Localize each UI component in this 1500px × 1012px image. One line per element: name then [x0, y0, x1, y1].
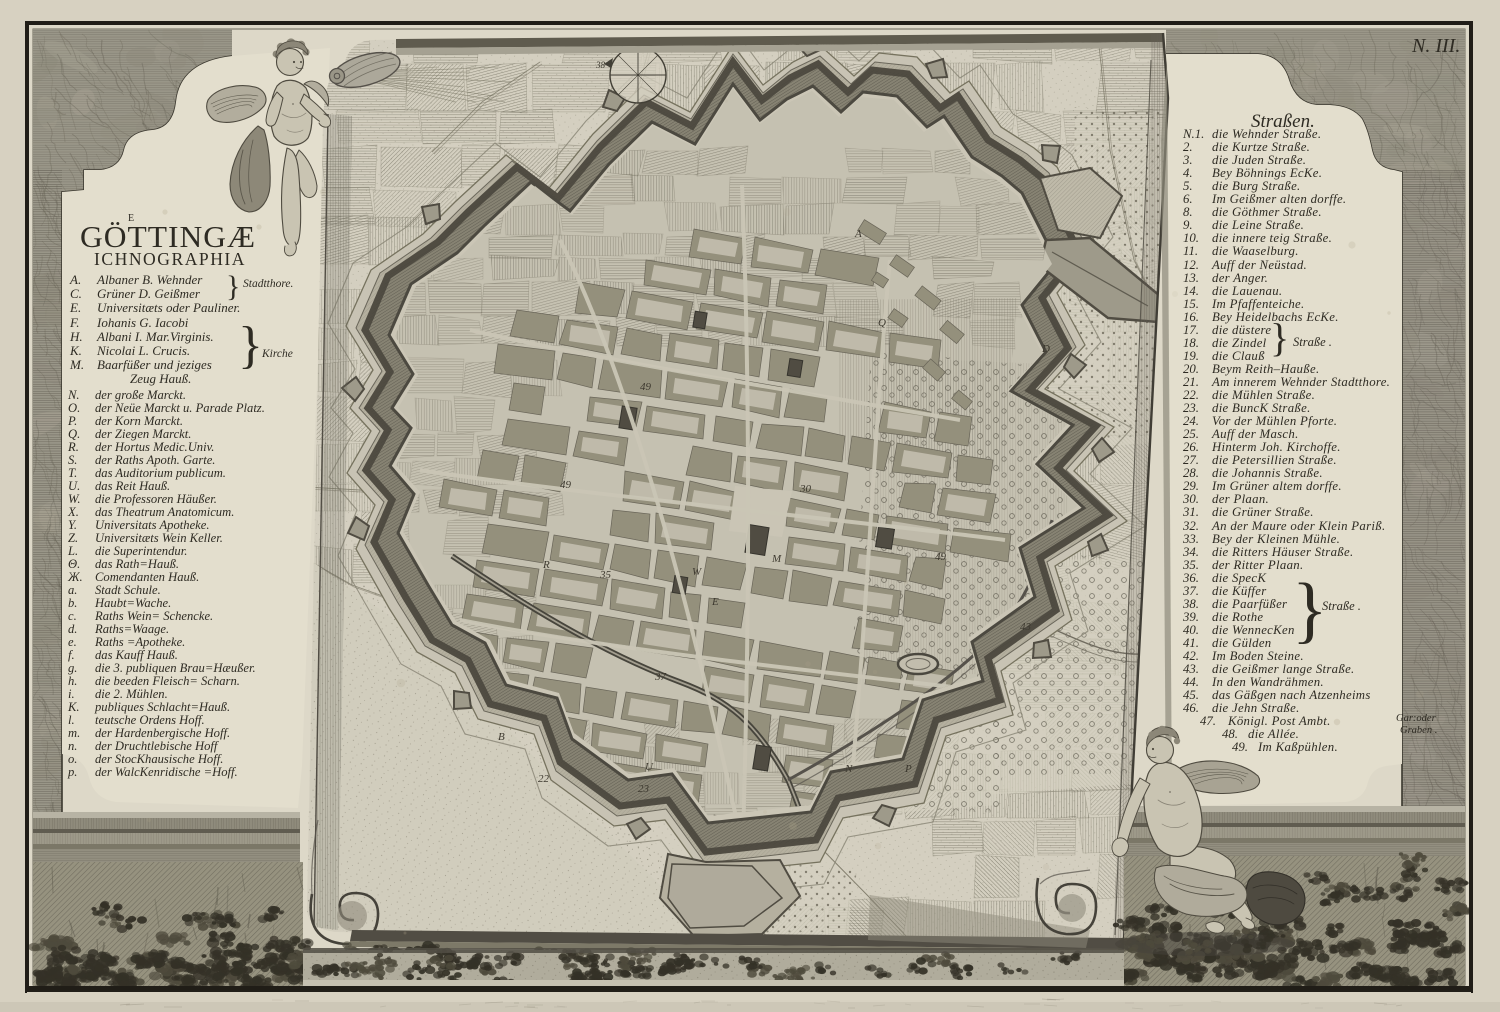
- svg-text:Iohanis G. Iacobi: Iohanis G. Iacobi: [96, 315, 189, 330]
- svg-text:L.: L.: [67, 544, 78, 558]
- svg-text:m.: m.: [68, 726, 80, 740]
- svg-text:37.: 37.: [1182, 584, 1199, 598]
- svg-text:41.: 41.: [1183, 636, 1199, 650]
- svg-text:Kirche: Kirche: [261, 348, 293, 360]
- svg-text:die Paarfüßer: die Paarfüßer: [1212, 597, 1288, 611]
- svg-text:30.: 30.: [1182, 492, 1199, 506]
- svg-text:p.: p.: [67, 765, 77, 779]
- svg-text:der WalcKenridische =Hoff.: der WalcKenridische =Hoff.: [95, 765, 238, 779]
- svg-text:6.: 6.: [1183, 192, 1193, 206]
- svg-text:C.: C.: [70, 286, 82, 301]
- svg-text:d.: d.: [68, 622, 77, 636]
- svg-text:die Gülden: die Gülden: [1212, 636, 1272, 650]
- svg-text:der Korn Marckt.: der Korn Marckt.: [95, 414, 183, 428]
- svg-text:26.: 26.: [1183, 440, 1199, 454]
- svg-text:Im Boden Steine.: Im Boden Steine.: [1211, 649, 1304, 663]
- svg-text:Comendanten Hauß.: Comendanten Hauß.: [95, 570, 199, 584]
- svg-text:Θ.: Θ.: [68, 557, 80, 571]
- svg-text:T.: T.: [68, 466, 77, 480]
- svg-text:die Küffer: die Küffer: [1212, 584, 1267, 598]
- svg-text:die Mühlen Straße.: die Mühlen Straße.: [1212, 388, 1315, 402]
- svg-text:die Burg Straße.: die Burg Straße.: [1212, 179, 1301, 193]
- svg-text:N. III.: N. III.: [1411, 35, 1460, 57]
- svg-text:Grüner D. Geißmer: Grüner D. Geißmer: [97, 286, 201, 301]
- svg-text:}: }: [1270, 315, 1289, 360]
- svg-text:die Clauß: die Clauß: [1212, 349, 1265, 363]
- svg-text:Zeug Hauß.: Zeug Hauß.: [130, 371, 191, 386]
- svg-text:o.: o.: [68, 752, 77, 766]
- svg-text:ICHNOGRAPHIA: ICHNOGRAPHIA: [94, 249, 246, 269]
- svg-text:c.: c.: [68, 609, 77, 623]
- svg-text:der Plaan.: der Plaan.: [1212, 492, 1269, 506]
- svg-text:38.: 38.: [1182, 597, 1199, 611]
- svg-text:29.: 29.: [1183, 479, 1199, 493]
- svg-text:die WennecKen: die WennecKen: [1212, 623, 1295, 637]
- svg-text:47.: 47.: [1200, 714, 1216, 728]
- svg-text:teutsche Ordens Hoff.: teutsche Ordens Hoff.: [95, 713, 205, 727]
- svg-text:N.: N.: [67, 388, 80, 402]
- svg-text:48.: 48.: [1222, 727, 1238, 741]
- svg-text:An der Maure oder Klein Pariß: An der Maure oder Klein Pariß.: [1211, 519, 1385, 533]
- svg-text:46.: 46.: [1183, 701, 1199, 715]
- svg-text:}: }: [226, 270, 240, 303]
- svg-text:die Grüner Straße.: die Grüner Straße.: [1212, 505, 1314, 519]
- svg-text:der StocKhausische Hoff.: der StocKhausische Hoff.: [95, 752, 223, 766]
- svg-text:A.: A.: [69, 272, 81, 287]
- svg-text:Auff der Masch.: Auff der Masch.: [1211, 427, 1299, 441]
- svg-text:39.: 39.: [1182, 610, 1199, 624]
- svg-text:Raths =Apotheke.: Raths =Apotheke.: [94, 635, 185, 649]
- svg-text:die Göthmer Straße.: die Göthmer Straße.: [1212, 205, 1322, 219]
- svg-text:die Superintendur.: die Superintendur.: [95, 544, 187, 558]
- svg-text:die 3. publiquen Brau=Hæußer.: die 3. publiquen Brau=Hæußer.: [95, 661, 256, 675]
- svg-text:die innere teig Straße.: die innere teig Straße.: [1212, 231, 1332, 245]
- svg-text:die Waaselburg.: die Waaselburg.: [1212, 244, 1299, 258]
- svg-text:13.: 13.: [1183, 271, 1199, 285]
- svg-text:}: }: [238, 317, 263, 374]
- svg-text:a.: a.: [68, 583, 77, 597]
- svg-text:8.: 8.: [1183, 205, 1193, 219]
- svg-text:das Rath=Hauß.: das Rath=Hauß.: [95, 557, 179, 571]
- svg-text:E.: E.: [69, 300, 81, 315]
- svg-text:b.: b.: [68, 596, 77, 610]
- svg-text:22.: 22.: [1183, 388, 1199, 402]
- svg-text:X.: X.: [67, 505, 79, 519]
- svg-text:die Zindel: die Zindel: [1212, 336, 1267, 350]
- svg-text:Im Geißmer alten dorffe.: Im Geißmer alten dorffe.: [1211, 192, 1346, 206]
- svg-text:24.: 24.: [1183, 414, 1199, 428]
- svg-text:die Johannis Straße.: die Johannis Straße.: [1212, 466, 1323, 480]
- svg-text:Straße .: Straße .: [1322, 599, 1361, 613]
- svg-text:Bey der Kleinen Mühle.: Bey der Kleinen Mühle.: [1212, 532, 1340, 546]
- svg-text:Stadtthore.: Stadtthore.: [243, 278, 293, 290]
- svg-text:49.: 49.: [1232, 740, 1248, 754]
- svg-text:Albaner B. Wehnder: Albaner B. Wehnder: [96, 272, 203, 287]
- svg-text:23.: 23.: [1183, 401, 1199, 415]
- svg-text:W.: W.: [68, 492, 80, 506]
- svg-text:Graben .: Graben .: [1400, 725, 1437, 736]
- svg-text:21.: 21.: [1183, 375, 1199, 389]
- svg-text:2.: 2.: [1183, 140, 1193, 154]
- svg-text:der große Marckt.: der große Marckt.: [95, 388, 186, 402]
- svg-text:das Reit Hauß.: das Reit Hauß.: [95, 479, 170, 493]
- svg-text:Stadt Schule.: Stadt Schule.: [95, 583, 161, 597]
- svg-text:die Leine Straße.: die Leine Straße.: [1212, 218, 1304, 232]
- svg-text:20.: 20.: [1183, 362, 1199, 376]
- svg-text:Ж.: Ж.: [67, 570, 83, 584]
- svg-text:4.: 4.: [1183, 166, 1193, 180]
- svg-text:der Raths Apoth. Garte.: der Raths Apoth. Garte.: [95, 453, 215, 467]
- svg-text:das Auditorium publicum.: das Auditorium publicum.: [95, 466, 226, 480]
- svg-text:3.: 3.: [1182, 153, 1193, 167]
- svg-text:der Hortus Medic.Univ.: der Hortus Medic.Univ.: [95, 440, 214, 454]
- svg-text:45.: 45.: [1183, 688, 1199, 702]
- svg-text:15.: 15.: [1183, 297, 1199, 311]
- svg-text:die BuncK Straße.: die BuncK Straße.: [1212, 401, 1311, 415]
- svg-text:n.: n.: [68, 739, 77, 753]
- svg-text:K.: K.: [67, 700, 80, 714]
- svg-text:das Gäßgen nach Atzenheims: das Gäßgen nach Atzenheims: [1212, 688, 1371, 702]
- svg-text:der Anger.: der Anger.: [1212, 271, 1268, 285]
- svg-text:die Kurtze Straße.: die Kurtze Straße.: [1212, 140, 1310, 154]
- svg-text:R.: R.: [67, 440, 79, 454]
- svg-text:11.: 11.: [1183, 244, 1198, 258]
- svg-text:Nicolai L. Crucis.: Nicolai L. Crucis.: [96, 343, 190, 358]
- svg-text:25.: 25.: [1183, 427, 1199, 441]
- svg-text:34.: 34.: [1182, 545, 1199, 559]
- svg-text:E: E: [128, 213, 134, 224]
- svg-text:die 2. Mühlen.: die 2. Mühlen.: [95, 687, 168, 701]
- svg-text:Albani I. Mar.Virginis.: Albani I. Mar.Virginis.: [96, 329, 214, 344]
- svg-text:43.: 43.: [1183, 662, 1199, 676]
- svg-text:Im Grüner altem dorffe.: Im Grüner altem dorffe.: [1211, 479, 1342, 493]
- svg-text:17.: 17.: [1183, 323, 1199, 337]
- svg-text:32.: 32.: [1182, 519, 1199, 533]
- svg-text:Beym Reith–Hauße.: Beym Reith–Hauße.: [1212, 362, 1319, 376]
- svg-text:f.: f.: [68, 648, 75, 662]
- svg-text:Baarfüßer und jeziges: Baarfüßer und jeziges: [97, 357, 212, 372]
- svg-text:In den Wandrähmen.: In den Wandrähmen.: [1211, 675, 1324, 689]
- svg-text:der Neüe Marckt u. Parade Plat: der Neüe Marckt u. Parade Platz.: [95, 401, 265, 415]
- svg-text:die Lauenau.: die Lauenau.: [1212, 284, 1282, 298]
- svg-text:O.: O.: [68, 401, 80, 415]
- svg-text:H.: H.: [69, 329, 83, 344]
- svg-text:g.: g.: [68, 661, 77, 675]
- svg-text:der Hardenbergische Hoff.: der Hardenbergische Hoff.: [95, 726, 230, 740]
- svg-text:P.: P.: [67, 414, 77, 428]
- svg-text:Universitæts Wein Keller.: Universitæts Wein Keller.: [95, 531, 223, 545]
- svg-text:h.: h.: [68, 674, 77, 688]
- svg-text:12.: 12.: [1183, 258, 1199, 272]
- svg-text:die Juden Straße.: die Juden Straße.: [1212, 153, 1306, 167]
- svg-text:M.: M.: [69, 357, 84, 372]
- svg-text:die SpecK: die SpecK: [1212, 571, 1267, 585]
- svg-text:16.: 16.: [1183, 310, 1199, 324]
- svg-text:18.: 18.: [1183, 336, 1199, 350]
- svg-text:33.: 33.: [1182, 532, 1199, 546]
- svg-text:28.: 28.: [1183, 466, 1199, 480]
- svg-text:Z.: Z.: [68, 531, 78, 545]
- svg-text:Hinterm Joh. Kirchoffe.: Hinterm Joh. Kirchoffe.: [1211, 440, 1341, 454]
- svg-text:Am innerem Wehnder Stadtthore.: Am innerem Wehnder Stadtthore.: [1211, 375, 1390, 389]
- svg-text:Universitats Apotheke.: Universitats Apotheke.: [95, 518, 210, 532]
- svg-text:S.: S.: [68, 453, 77, 467]
- svg-text:40.: 40.: [1183, 623, 1199, 637]
- svg-text:die Geißmer lange Straße.: die Geißmer lange Straße.: [1212, 662, 1355, 676]
- svg-text:36.: 36.: [1182, 571, 1199, 585]
- svg-text:Raths=Waage.: Raths=Waage.: [94, 622, 169, 636]
- svg-text:Vor der Mühlen Pforte.: Vor der Mühlen Pforte.: [1212, 414, 1337, 428]
- svg-text:publiques Schlacht=Hauß.: publiques Schlacht=Hauß.: [94, 700, 230, 714]
- svg-text:31.: 31.: [1182, 505, 1199, 519]
- svg-text:F.: F.: [69, 315, 80, 330]
- svg-text:Auff der Neüstad.: Auff der Neüstad.: [1211, 258, 1307, 272]
- svg-text:Gar:oder: Gar:oder: [1396, 713, 1437, 724]
- svg-text:19.: 19.: [1183, 349, 1199, 363]
- svg-text:die Jehn Straße.: die Jehn Straße.: [1212, 701, 1300, 715]
- svg-text:das Theatrum Anatomicum.: das Theatrum Anatomicum.: [95, 505, 234, 519]
- svg-text:U.: U.: [68, 479, 80, 493]
- svg-text:10.: 10.: [1183, 231, 1199, 245]
- svg-text:i.: i.: [68, 687, 75, 701]
- svg-text:die beeden Fleisch= Scharn.: die beeden Fleisch= Scharn.: [95, 674, 240, 688]
- svg-text:Haubt=Wache.: Haubt=Wache.: [94, 596, 171, 610]
- svg-text:e.: e.: [68, 635, 77, 649]
- svg-text:35.: 35.: [1182, 558, 1199, 572]
- svg-text:14.: 14.: [1183, 284, 1199, 298]
- svg-text:K.: K.: [69, 343, 82, 358]
- svg-text:Bey Böhnings EcKe.: Bey Böhnings EcKe.: [1212, 166, 1322, 180]
- svg-text:die Petersillien Straße.: die Petersillien Straße.: [1212, 453, 1337, 467]
- svg-text:der Ziegen Marckt.: der Ziegen Marckt.: [95, 427, 191, 441]
- svg-text:Y.: Y.: [68, 518, 77, 532]
- svg-text:42.: 42.: [1183, 649, 1199, 663]
- svg-text:Universitæts oder Pauliner.: Universitæts oder Pauliner.: [97, 300, 240, 315]
- svg-text:44.: 44.: [1183, 675, 1199, 689]
- svg-text:Im Pfaffenteiche.: Im Pfaffenteiche.: [1211, 297, 1305, 311]
- svg-text:der Ritter Plaan.: der Ritter Plaan.: [1212, 558, 1303, 572]
- svg-text:5.: 5.: [1183, 179, 1193, 193]
- svg-text:die Professoren Häußer.: die Professoren Häußer.: [95, 492, 217, 506]
- svg-text:Im Kaßpühlen.: Im Kaßpühlen.: [1257, 740, 1338, 754]
- svg-text:die Rothe: die Rothe: [1212, 610, 1263, 624]
- svg-text:die Ritters Häuser Straße.: die Ritters Häuser Straße.: [1212, 545, 1353, 559]
- svg-text:die Wehnder Straße.: die Wehnder Straße.: [1212, 127, 1321, 141]
- svg-text:die düstere: die düstere: [1212, 323, 1271, 337]
- svg-text:Königl. Post Ambt.: Königl. Post Ambt.: [1227, 714, 1331, 728]
- svg-text:die Allée.: die Allée.: [1248, 727, 1299, 741]
- svg-text:der Druchtlebische Hoff: der Druchtlebische Hoff: [95, 739, 219, 753]
- svg-text:9.: 9.: [1183, 218, 1193, 232]
- svg-text:Raths Wein= Schencke.: Raths Wein= Schencke.: [94, 609, 213, 623]
- svg-text:Q.: Q.: [68, 427, 80, 441]
- svg-text:das Kauff Hauß.: das Kauff Hauß.: [95, 648, 178, 662]
- svg-text:27.: 27.: [1183, 453, 1199, 467]
- svg-text:N.1.: N.1.: [1182, 127, 1204, 141]
- svg-text:l.: l.: [68, 713, 75, 727]
- svg-text:Straße .: Straße .: [1293, 335, 1332, 349]
